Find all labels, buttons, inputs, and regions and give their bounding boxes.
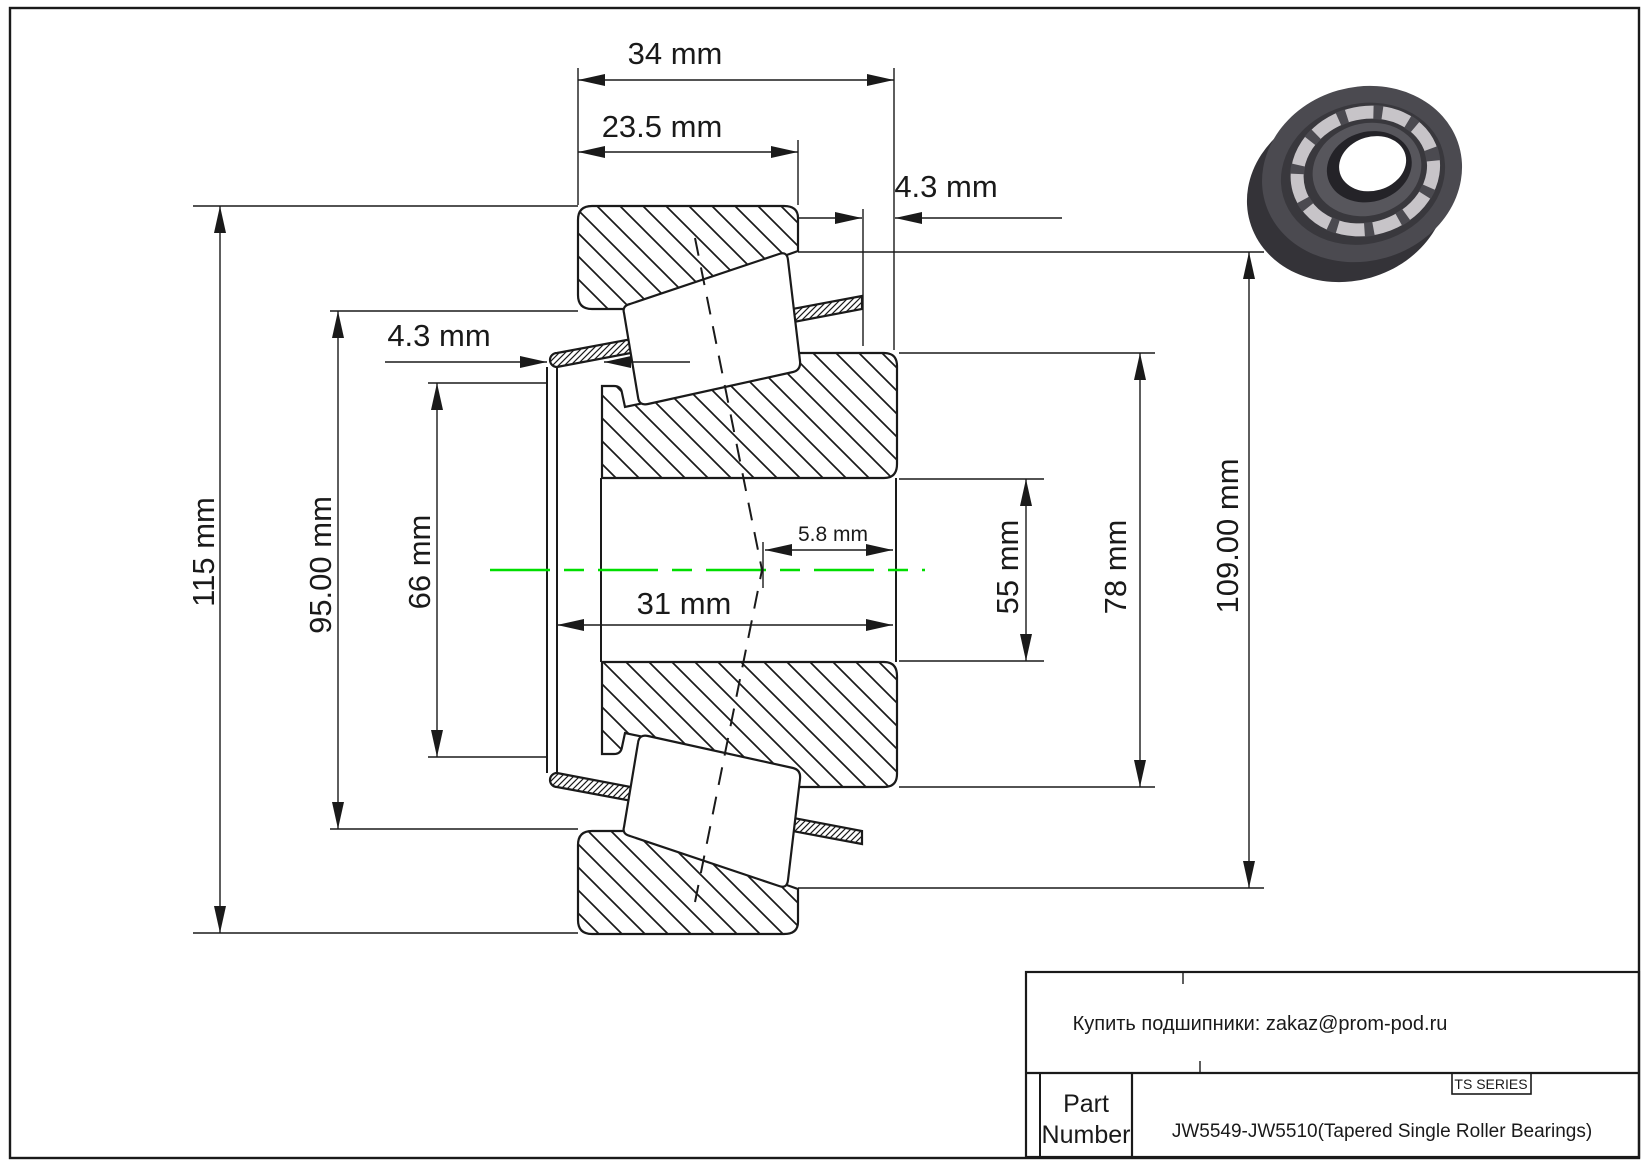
dimension-66-label: 66 mm [402,515,437,610]
dimension-31-label: 31 mm [637,586,732,621]
dimension-115-label: 115 mm [186,497,221,607]
dimension-78-label: 78 mm [1098,520,1133,615]
technical-drawing: 34 mm 23.5 mm 4.3 mm 4.3 mm 5.8 mm 31 mm… [0,0,1649,1167]
dimension-23-5 [578,146,798,158]
dimension-34 [578,74,894,86]
dimension-5-8-label: 5.8 mm [798,523,868,546]
drawing-page: 34 mm 23.5 mm 4.3 mm 4.3 mm 5.8 mm 31 mm… [0,0,1649,1167]
bearing-top-half [550,206,897,478]
part-label-line2: Number [1042,1121,1131,1149]
dimension-4-3-top-label: 4.3 mm [894,169,997,204]
dimension-34-label: 34 mm [628,36,723,71]
dimension-95-label: 95.00 mm [303,496,338,634]
series-text: TS SERIES [1454,1076,1527,1092]
part-label-line1: Part [1063,1090,1109,1118]
dimension-23-5-label: 23.5 mm [602,109,723,144]
part-number-text: JW5549-JW5510(Tapered Single Roller Bear… [1172,1121,1592,1142]
contact-text: Купить подшипники: zakaz@prom-pod.ru [1073,1013,1448,1035]
bearing-bottom-half [550,662,897,934]
dimension-109-label: 109.00 mm [1210,458,1245,613]
dimension-4-3-left-label: 4.3 mm [387,318,490,353]
dimension-55-label: 55 mm [990,520,1025,615]
dimension-4-3-top [798,212,1062,224]
bearing-photo [1222,63,1487,306]
dimension-78 [1134,353,1146,787]
